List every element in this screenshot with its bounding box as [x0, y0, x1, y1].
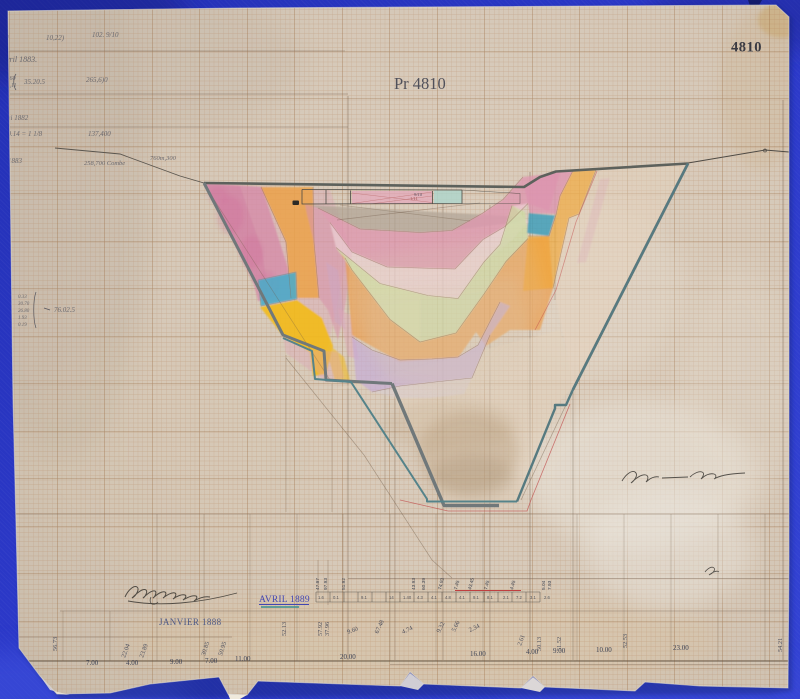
svg-text:Pr 4810: Pr 4810	[394, 74, 446, 93]
svg-text:1.40: 1.40	[403, 595, 412, 600]
svg-text:51.92: 51.92	[341, 578, 347, 590]
svg-text:30.70: 30.70	[18, 302, 30, 307]
svg-text:10.00: 10.00	[596, 646, 612, 654]
svg-text:97.93: 97.93	[323, 578, 329, 590]
svg-text:20.00: 20.00	[340, 653, 356, 661]
svg-text:8.1: 8.1	[487, 595, 493, 600]
svg-text:7.00: 7.00	[205, 657, 218, 665]
svg-text:4.1: 4.1	[459, 595, 465, 600]
svg-text:56.73: 56.73	[52, 637, 59, 651]
svg-text:4810: 4810	[731, 40, 762, 56]
svg-text:AVRIL 1889: AVRIL 1889	[259, 595, 310, 605]
svg-text:14: 14	[389, 595, 394, 600]
svg-text:137,400: 137,400	[88, 130, 111, 138]
svg-text:9/10: 9/10	[414, 192, 423, 197]
svg-text:4.00: 4.00	[526, 648, 539, 656]
svg-text:7.93: 7.93	[547, 580, 553, 590]
svg-text:54.21: 54.21	[777, 638, 784, 652]
svg-text:265,6)0: 265,6)0	[86, 76, 108, 84]
svg-text:102. 9/10: 102. 9/10	[92, 31, 119, 39]
svg-text:7.2: 7.2	[516, 595, 522, 600]
svg-text:47.97: 47.97	[315, 578, 321, 590]
svg-text:10,22): 10,22)	[46, 34, 65, 42]
svg-text:3.1: 3.1	[530, 595, 536, 600]
svg-text:16.00: 16.00	[470, 650, 486, 658]
svg-text:2.1: 2.1	[503, 595, 509, 600]
svg-text:11.00: 11.00	[235, 655, 251, 663]
svg-text:760m,300: 760m,300	[150, 155, 177, 162]
svg-text:9.1: 9.1	[473, 595, 479, 600]
svg-text:35.20.5: 35.20.5	[23, 78, 46, 86]
svg-text:2.6: 2.6	[544, 595, 550, 600]
svg-text:0.33: 0.33	[18, 295, 27, 300]
svg-text:0.1: 0.1	[333, 595, 339, 600]
svg-text:JANVIER 1888: JANVIER 1888	[159, 617, 222, 627]
svg-text:1.93: 1.93	[18, 316, 27, 321]
svg-text:26.80: 26.80	[18, 309, 30, 314]
svg-text:76.02.5: 76.02.5	[54, 306, 76, 314]
svg-text:60.39: 60.39	[421, 578, 427, 590]
svg-text:4.3: 4.3	[417, 595, 423, 600]
svg-text:9.00: 9.00	[553, 647, 566, 655]
svg-text:52.13: 52.13	[281, 622, 288, 636]
svg-text:4.8: 4.8	[445, 595, 451, 600]
svg-text:1.6: 1.6	[318, 595, 324, 600]
svg-text:258,700 Combe: 258,700 Combe	[84, 160, 125, 167]
svg-text:43.93: 43.93	[411, 578, 417, 590]
svg-text:9.00: 9.00	[170, 658, 183, 666]
svg-text:4.00: 4.00	[126, 659, 139, 667]
svg-text:52.53: 52.53	[622, 634, 629, 648]
svg-text:5.04: 5.04	[541, 580, 547, 590]
svg-text:7.00: 7.00	[86, 659, 99, 667]
svg-text:23.00: 23.00	[673, 644, 689, 652]
svg-text:0.19: 0.19	[18, 323, 27, 328]
svg-text:4.1: 4.1	[431, 595, 437, 600]
svg-text:57.92: 57.92	[317, 622, 324, 636]
svg-text:9.1: 9.1	[361, 595, 367, 600]
svg-text:37.96: 37.96	[324, 622, 331, 636]
